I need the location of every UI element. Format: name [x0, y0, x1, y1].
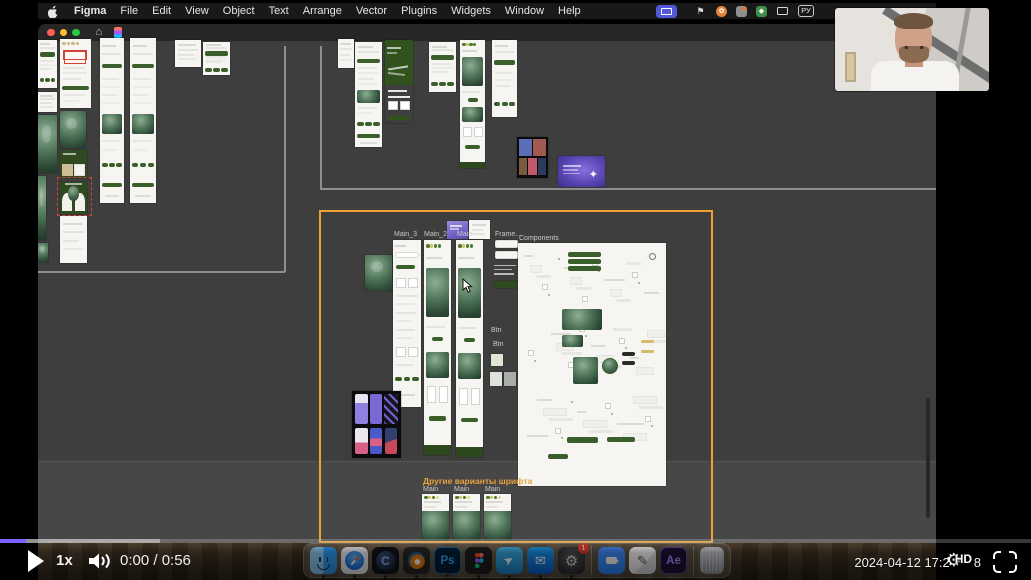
apple-menu-icon[interactable] — [48, 5, 59, 18]
canvas-frame-teal-photo[interactable] — [38, 243, 48, 262]
flag-icon[interactable]: ⚑ — [694, 5, 707, 18]
progress-played — [0, 539, 26, 543]
presenter-hair — [894, 13, 933, 29]
canvas-frame-white-app-tall[interactable] — [100, 38, 124, 203]
orange-app-icon[interactable]: ✿ — [716, 6, 727, 17]
player-right-cluster: 2024-04-12 17:2 ⚙ HD 8 — [854, 550, 1017, 574]
figma-title-bar: ⌂ — [38, 24, 936, 41]
menu-plugins[interactable]: Plugins — [394, 5, 444, 17]
canvas-frame-white-app[interactable] — [492, 40, 517, 117]
menu-edit[interactable]: Edit — [145, 5, 178, 17]
menu-arrange[interactable]: Arrange — [296, 5, 349, 17]
webcam-overlay — [835, 8, 989, 91]
fullscreen-button[interactable] — [993, 551, 1017, 573]
selection-rectangle-orange[interactable] — [319, 210, 713, 543]
play-button[interactable] — [26, 549, 45, 578]
canvas-frame-white-doc[interactable] — [60, 216, 87, 263]
player-controls: 1x 0:00 / 0:56 2024-04-12 17:2 ⚙ HD 8 — [0, 546, 1031, 578]
webcam-background-frame — [845, 52, 856, 82]
close-window-button[interactable] — [47, 29, 55, 37]
canvas-frame-white-app[interactable] — [203, 42, 230, 75]
canvas-frame-white-app-tall[interactable] — [130, 38, 156, 203]
canvas-frame-teal-photo[interactable] — [60, 111, 86, 148]
canvas-frame-white-doc[interactable] — [175, 40, 201, 67]
red-box-annotation — [64, 51, 86, 64]
display-icon[interactable] — [776, 5, 789, 18]
minimize-window-button[interactable] — [60, 29, 68, 37]
menu-help[interactable]: Help — [551, 5, 588, 17]
menu-widgets[interactable]: Widgets — [444, 5, 498, 17]
frame-outline-line — [38, 271, 285, 273]
macos-menu-bar: Figma FileEditViewObjectTextArrangeVecto… — [38, 3, 936, 19]
playback-speed-button[interactable]: 1x — [56, 552, 73, 569]
quality-control[interactable]: ⚙ HD — [946, 550, 980, 574]
canvas-frame-purple-slide[interactable]: ✦ — [558, 156, 605, 187]
canvas-frame-teal-photo[interactable] — [38, 115, 57, 173]
canvas-frame-white-app[interactable] — [429, 42, 456, 92]
red-dashed-annotation — [57, 177, 92, 216]
volume-icon[interactable] — [87, 550, 113, 577]
green-app-icon[interactable]: ◆ — [756, 6, 767, 17]
video-player-stage: Figma FileEditViewObjectTextArrangeVecto… — [0, 0, 1031, 580]
progress-bar[interactable] — [0, 539, 1031, 543]
canvas-frame-teal-photo[interactable] — [38, 176, 46, 240]
canvas-frame-dark-board-photos[interactable] — [517, 137, 548, 178]
canvas-frame-green-rich[interactable] — [460, 40, 485, 168]
canvas-frame-white-app-tall[interactable] — [355, 42, 382, 147]
screen-share-indicator-icon[interactable] — [656, 5, 677, 18]
menu-file[interactable]: File — [113, 5, 145, 17]
mouse-cursor — [462, 278, 473, 299]
menu-bar-status-area: ⚑ ✿ ◆ РУ — [656, 3, 814, 19]
menu-object[interactable]: Object — [216, 5, 262, 17]
menu-vector[interactable]: Vector — [349, 5, 394, 17]
input-source-indicator[interactable]: РУ — [798, 5, 814, 17]
frame-outline-line — [320, 188, 936, 190]
canvas-frame-white-app-redbox[interactable] — [60, 39, 91, 108]
menu-window[interactable]: Window — [498, 5, 551, 17]
canvas-frame-green-app[interactable] — [385, 40, 413, 123]
menu-text[interactable]: Text — [262, 5, 296, 17]
camera-app-icon[interactable] — [736, 6, 747, 17]
canvas-frame-white-app[interactable] — [38, 40, 57, 88]
hd-quality-badge[interactable]: HD — [955, 552, 972, 566]
figma-file-tab-icon[interactable] — [114, 27, 122, 38]
home-icon[interactable]: ⌂ — [96, 27, 103, 38]
canvas-scrollbar[interactable] — [926, 398, 930, 518]
canvas-frame-green-tan[interactable] — [60, 150, 87, 178]
zoom-window-button[interactable] — [72, 29, 80, 37]
time-display: 0:00 / 0:56 — [120, 552, 191, 569]
presenter-eyes — [903, 46, 925, 49]
recording-timestamp: 2024-04-12 17:2 — [854, 555, 949, 570]
frame-outline-line — [284, 46, 286, 272]
menu-view[interactable]: View — [178, 5, 216, 17]
canvas-frame-white-doc[interactable] — [338, 39, 354, 68]
canvas-frame-white-doc[interactable] — [38, 92, 57, 112]
frame-outline-line — [320, 46, 322, 188]
menu-app-name[interactable]: Figma — [67, 5, 113, 17]
